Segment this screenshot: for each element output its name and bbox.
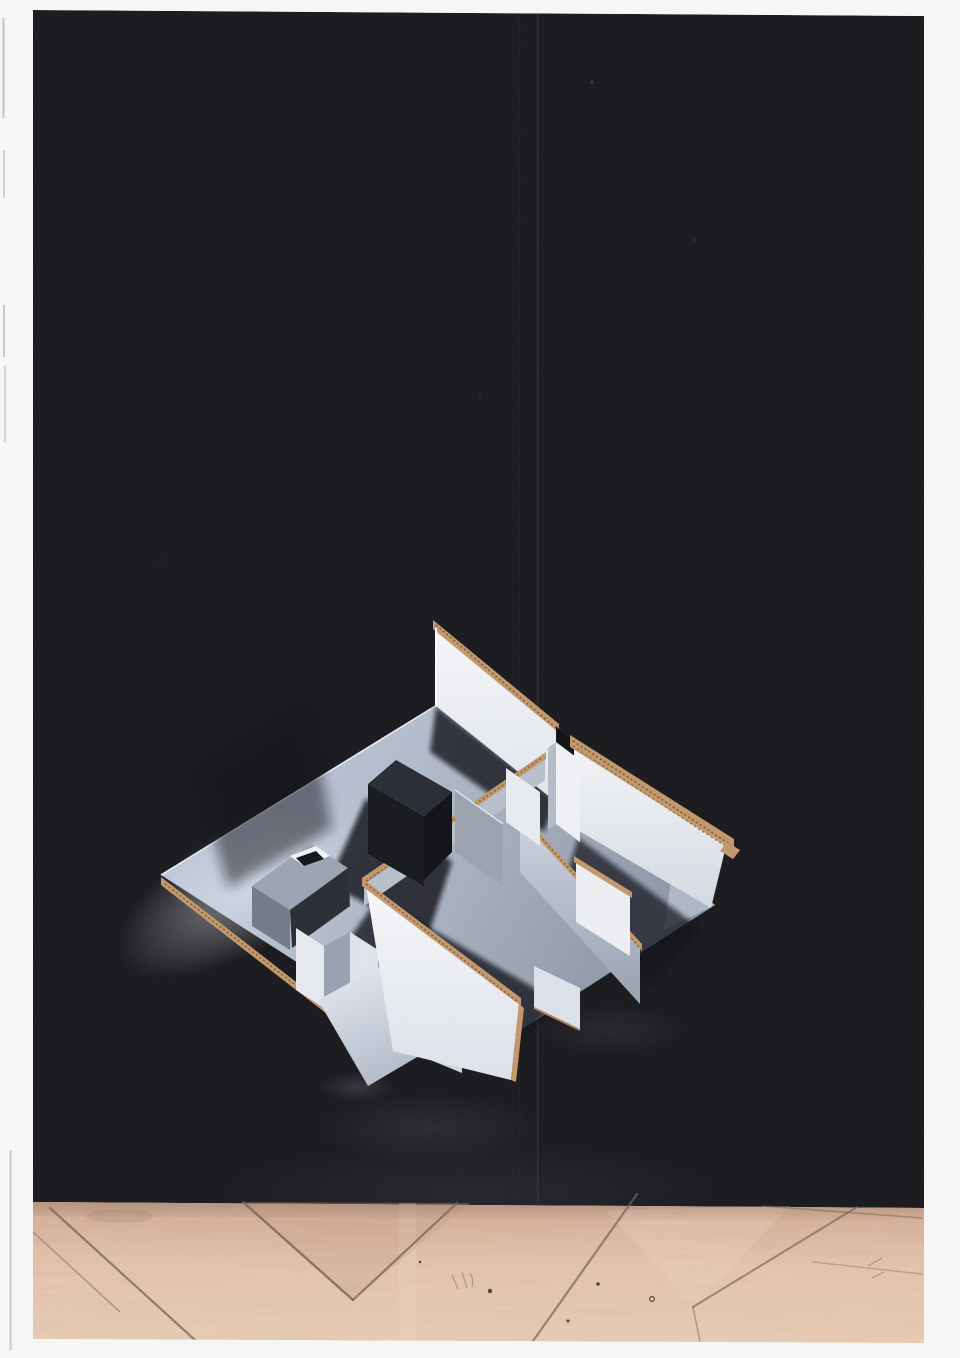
scan-streak (3, 18, 5, 118)
photograph-of-architecture-model (0, 0, 960, 1358)
scan-streak (3, 305, 5, 357)
film-grain (33, 10, 924, 1343)
scanned-photo-page (0, 0, 960, 1358)
scan-edge-streaks (3, 18, 12, 1350)
scan-streak (3, 150, 5, 198)
scan-streak (10, 1150, 12, 1350)
photo-print (33, 10, 924, 1343)
scan-streak (4, 365, 6, 443)
